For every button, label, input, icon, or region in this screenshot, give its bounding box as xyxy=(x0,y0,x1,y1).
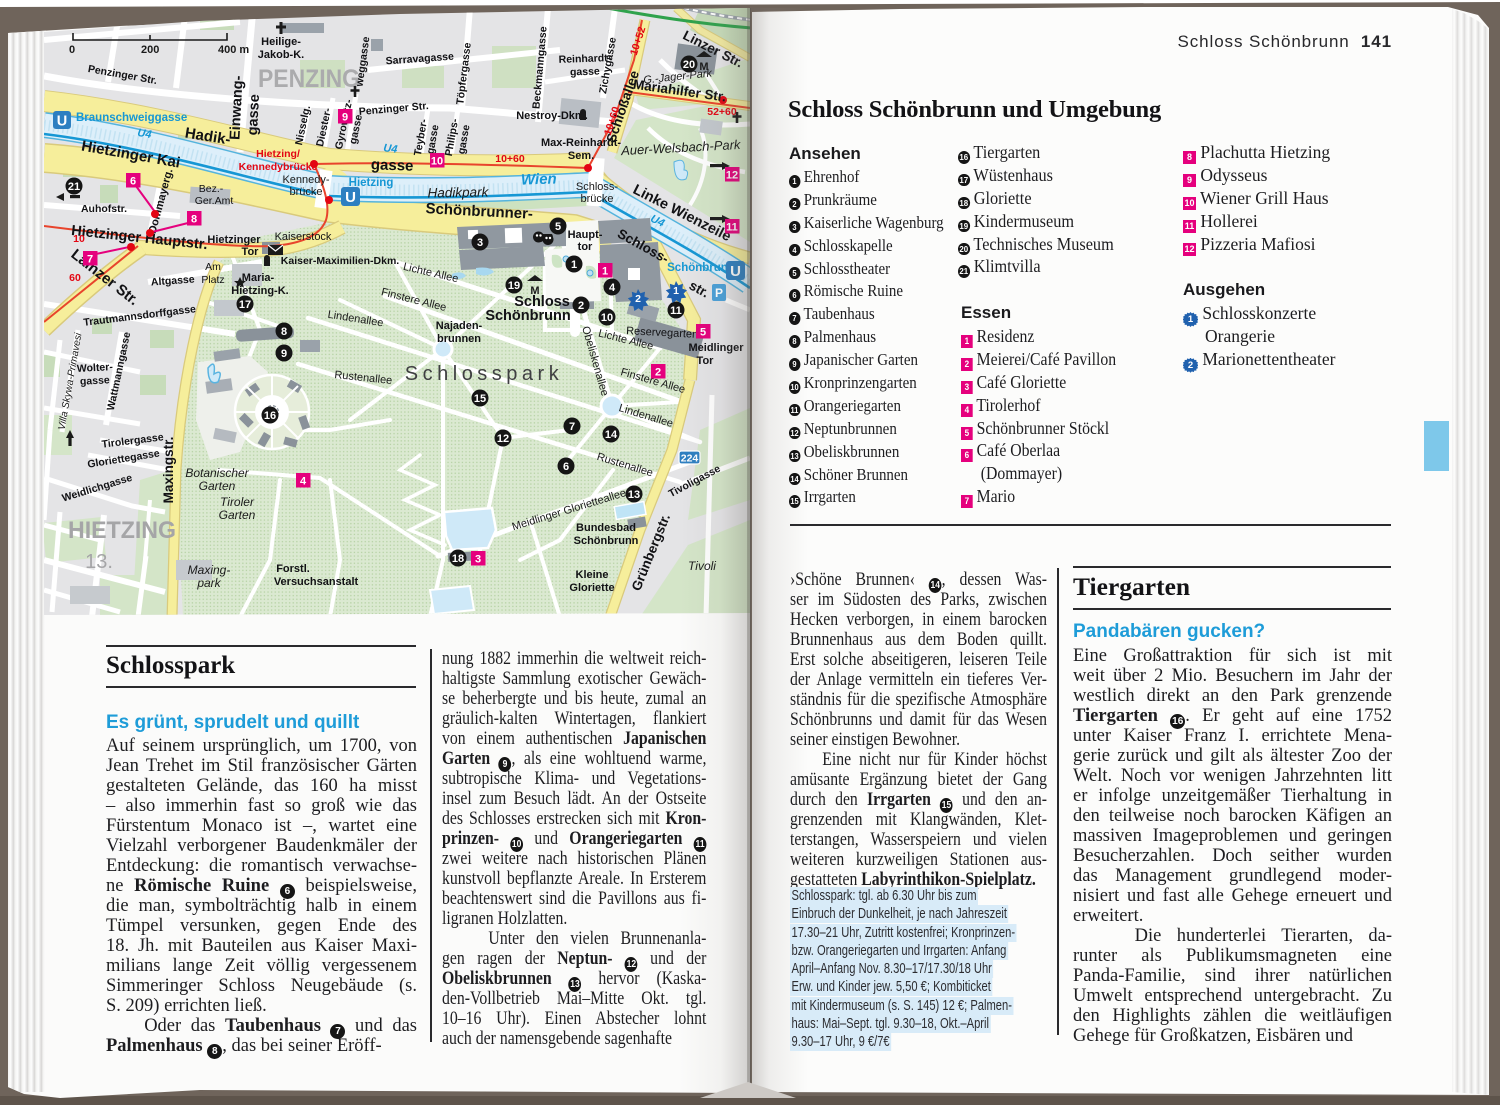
svg-text:Bez.-: Bez.- xyxy=(199,183,224,195)
svg-text:Nestroy-Dkm.: Nestroy-Dkm. xyxy=(516,110,588,122)
svg-text:gasse: gasse xyxy=(570,65,600,78)
svg-text:Wien: Wien xyxy=(521,170,557,188)
svg-text:15: 15 xyxy=(474,393,486,405)
svg-text:Platz: Platz xyxy=(201,274,224,286)
svg-text:2: 2 xyxy=(578,300,584,312)
svg-text:U4: U4 xyxy=(137,127,153,141)
svg-text:HIETZING: HIETZING xyxy=(68,517,176,544)
svg-text:5: 5 xyxy=(555,221,561,233)
svg-text:10: 10 xyxy=(73,233,85,245)
svg-text:Hadikpark: Hadikpark xyxy=(427,184,489,200)
svg-text:400 m: 400 m xyxy=(218,44,249,56)
svg-text:Kennedybrücke: Kennedybrücke xyxy=(239,161,318,173)
svg-text:6: 6 xyxy=(130,176,136,188)
svg-text:18: 18 xyxy=(452,553,464,565)
svg-text:12: 12 xyxy=(497,433,509,445)
svg-text:3: 3 xyxy=(475,554,481,566)
svg-text:Maxingstr.: Maxingstr. xyxy=(161,437,176,504)
svg-text:Hietzing/: Hietzing/ xyxy=(256,148,300,160)
svg-text:Forstl.: Forstl. xyxy=(276,563,310,575)
svg-text:Tiroler: Tiroler xyxy=(220,495,255,509)
svg-text:brücke: brücke xyxy=(580,193,613,205)
svg-text:Kennedy-: Kennedy- xyxy=(282,174,329,186)
svg-text:Kaiser-Maximilien-Dkm.: Kaiser-Maximilien-Dkm. xyxy=(281,255,400,267)
svg-text:Maria-: Maria- xyxy=(242,272,275,284)
svg-text:8: 8 xyxy=(281,326,287,338)
svg-text:U4: U4 xyxy=(383,142,398,156)
svg-text:Botanischer: Botanischer xyxy=(185,466,249,480)
svg-text:Wolter-: Wolter- xyxy=(77,361,114,375)
svg-text:Kaiserstock: Kaiserstock xyxy=(275,231,332,243)
svg-text:U: U xyxy=(345,189,356,206)
svg-text:9: 9 xyxy=(281,348,287,360)
svg-text:16: 16 xyxy=(264,410,276,422)
svg-text:19: 19 xyxy=(508,280,520,292)
svg-text:13.: 13. xyxy=(85,551,113,573)
svg-text:1: 1 xyxy=(673,285,679,297)
svg-text:Auhofstr.: Auhofstr. xyxy=(81,203,127,215)
svg-text:Najaden-: Najaden- xyxy=(436,320,483,332)
svg-text:200: 200 xyxy=(141,44,159,56)
svg-text:Am: Am xyxy=(205,261,221,273)
svg-text:Einwang-: Einwang- xyxy=(227,75,246,140)
svg-text:gasse: gasse xyxy=(371,156,414,174)
svg-text:Sem.: Sem. xyxy=(568,150,594,162)
svg-text:13: 13 xyxy=(628,489,640,501)
svg-text:Schlosspark: Schlosspark xyxy=(405,363,563,385)
svg-text:Schönbrunn: Schönbrunn xyxy=(485,308,570,324)
svg-text:Maxing-: Maxing- xyxy=(188,563,231,577)
svg-text:gasse: gasse xyxy=(245,94,263,136)
svg-text:Garten: Garten xyxy=(199,479,236,493)
svg-text:2: 2 xyxy=(635,293,641,305)
svg-text:Braunschweiggasse: Braunschweiggasse xyxy=(76,112,187,124)
svg-text:Hietzinger: Hietzinger xyxy=(207,234,261,246)
svg-text:tor: tor xyxy=(578,241,593,253)
svg-text:0: 0 xyxy=(69,44,75,56)
svg-text:14: 14 xyxy=(605,429,618,441)
svg-text:7: 7 xyxy=(87,254,93,266)
svg-text:6: 6 xyxy=(563,461,569,473)
svg-text:U: U xyxy=(57,114,67,130)
svg-text:21: 21 xyxy=(68,181,80,193)
svg-text:Versuchsanstalt: Versuchsanstalt xyxy=(274,576,359,588)
svg-text:10+60: 10+60 xyxy=(495,153,525,165)
svg-text:Schloss-: Schloss- xyxy=(576,181,619,193)
svg-text:2: 2 xyxy=(655,367,661,379)
svg-text:Tor: Tor xyxy=(242,246,260,258)
svg-text:Bundesbad: Bundesbad xyxy=(576,522,636,534)
svg-text:Gloriette: Gloriette xyxy=(569,582,614,594)
svg-text:60: 60 xyxy=(69,272,81,284)
svg-text:Garten: Garten xyxy=(219,508,256,522)
svg-text:10: 10 xyxy=(601,312,613,324)
svg-text:Heilige-: Heilige- xyxy=(261,36,301,48)
svg-text:4: 4 xyxy=(300,476,307,488)
svg-text:PENZING: PENZING xyxy=(258,65,360,93)
svg-text:gasse: gasse xyxy=(80,374,111,388)
svg-text:Schönbrunn: Schönbrunn xyxy=(574,535,639,547)
svg-text:17: 17 xyxy=(239,299,251,311)
svg-text:brücke: brücke xyxy=(289,186,322,198)
svg-text:7: 7 xyxy=(569,421,575,433)
svg-text:Kleine: Kleine xyxy=(575,569,608,581)
svg-text:8: 8 xyxy=(191,214,197,226)
svg-text:M: M xyxy=(530,285,539,297)
svg-text:Jakob-K.: Jakob-K. xyxy=(258,49,304,61)
svg-text:10: 10 xyxy=(431,156,443,168)
svg-text:4: 4 xyxy=(609,282,616,294)
svg-text:9: 9 xyxy=(342,112,348,124)
svg-text:3: 3 xyxy=(477,237,483,249)
svg-text:Max-Reinhardt-: Max-Reinhardt- xyxy=(541,137,621,149)
svg-text:park: park xyxy=(196,576,221,590)
svg-text:Ger.Amt: Ger.Amt xyxy=(195,195,234,207)
svg-text:Haupt-: Haupt- xyxy=(568,229,603,241)
svg-text:1: 1 xyxy=(602,266,608,278)
svg-text:Hietzing-K.: Hietzing-K. xyxy=(231,285,288,297)
svg-text:1: 1 xyxy=(571,259,577,271)
svg-text:brunnen: brunnen xyxy=(437,333,481,345)
